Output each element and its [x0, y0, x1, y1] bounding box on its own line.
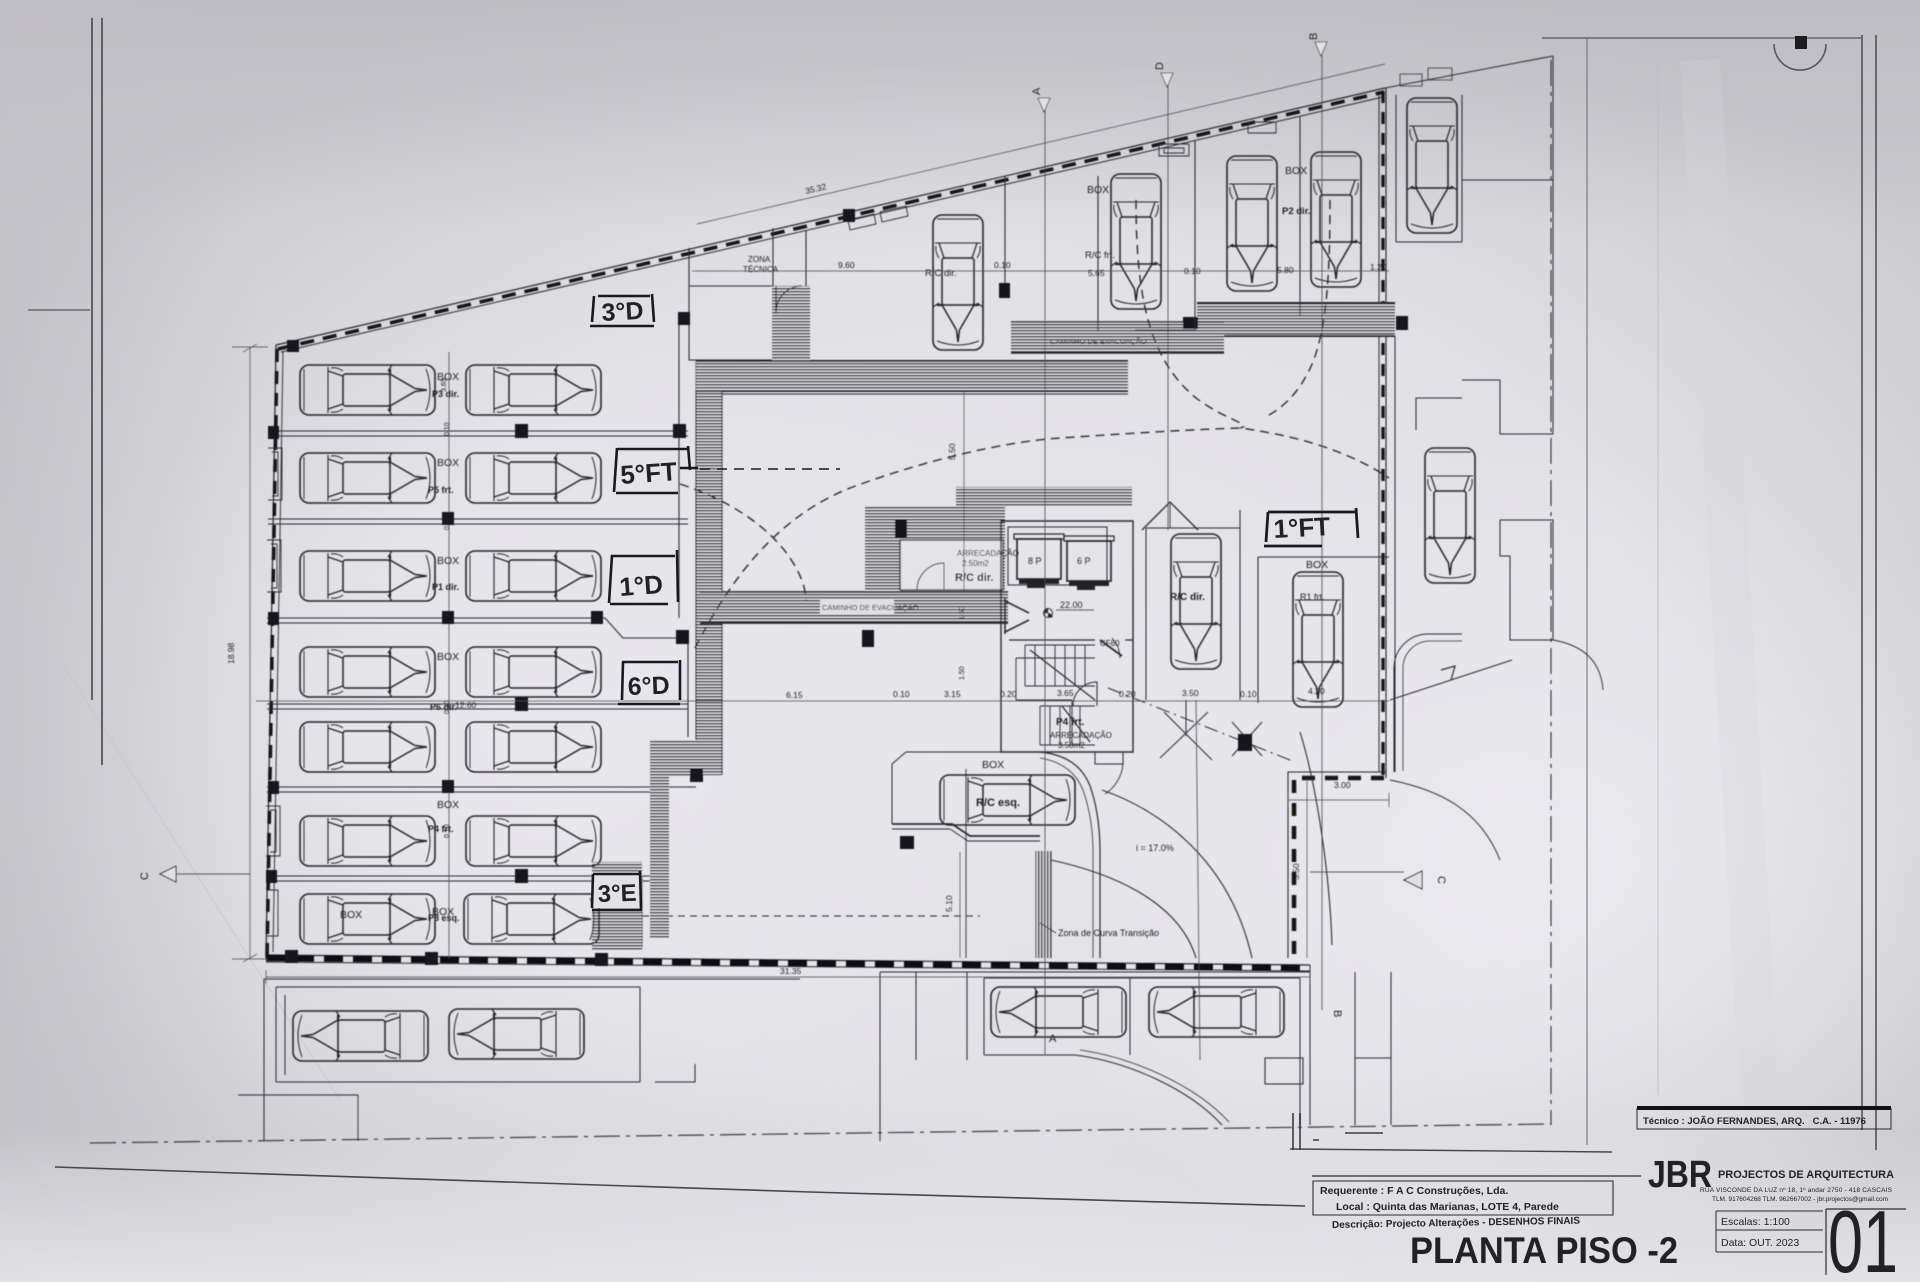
svg-text:5.80: 5.80 [1277, 265, 1294, 275]
svg-text:C: C [1435, 876, 1447, 884]
svg-text:Data: OUT. 2023: Data: OUT. 2023 [1721, 1237, 1799, 1249]
svg-text:Local : Quinta das Marianas, L: Local : Quinta das Marianas, LOTE 4, Par… [1336, 1201, 1559, 1213]
svg-text:0.10: 0.10 [444, 422, 451, 436]
svg-text:0.10: 0.10 [1240, 689, 1257, 699]
svg-text:BOX: BOX [1306, 559, 1328, 571]
svg-text:Escalas: 1:100: Escalas: 1:100 [1721, 1216, 1790, 1228]
svg-text:BOX: BOX [437, 555, 459, 567]
svg-text:R/C esq.: R/C esq. [976, 797, 1020, 809]
svg-text:0.20: 0.20 [1000, 689, 1017, 699]
svg-text:0.10: 0.10 [893, 689, 910, 699]
svg-text:i = 17.0%: i = 17.0% [1136, 843, 1174, 853]
svg-text:0.10: 0.10 [444, 700, 451, 714]
svg-text:CF60: CF60 [1100, 639, 1120, 648]
svg-text:01: 01 [1828, 1192, 1898, 1282]
svg-text:1.50: 1.50 [959, 666, 966, 680]
svg-text:5.65: 5.65 [1088, 268, 1105, 278]
svg-text:3°D: 3°D [601, 297, 644, 327]
svg-text:A: A [1031, 87, 1043, 95]
svg-text:8 P: 8 P [1028, 556, 1042, 566]
svg-text:5.50: 5.50 [947, 443, 957, 460]
svg-text:0.10: 0.10 [994, 260, 1011, 270]
svg-text:1°D: 1°D [618, 569, 664, 602]
svg-text:TÉCNICA: TÉCNICA [743, 265, 779, 274]
svg-text:R/C dir.: R/C dir. [925, 268, 957, 279]
svg-text:D: D [1154, 62, 1166, 70]
svg-text:P4 frt.: P4 frt. [1056, 717, 1085, 728]
svg-text:6°D: 6°D [627, 672, 670, 701]
svg-text:1°FT: 1°FT [1273, 511, 1331, 544]
svg-text:ZONA: ZONA [748, 255, 771, 264]
svg-text:PLANTA PISO -2: PLANTA PISO -2 [1410, 1230, 1678, 1271]
svg-text:B: B [1331, 1010, 1343, 1017]
svg-text:3.65: 3.65 [1057, 688, 1074, 698]
svg-text:5.50: 5.50 [1291, 863, 1301, 880]
svg-text:PROJECTOS DE ARQUITECTURA: PROJECTOS DE ARQUITECTURA [1718, 1169, 1894, 1181]
svg-text:1.50: 1.50 [959, 606, 966, 620]
svg-text:BOX: BOX [1285, 165, 1307, 177]
svg-text:12.60: 12.60 [455, 700, 477, 710]
svg-text:BOX: BOX [982, 759, 1004, 771]
svg-text:B: B [1308, 33, 1320, 40]
svg-text:CAMINHO DE EVACUAÇÃO: CAMINHO DE EVACUAÇÃO [822, 603, 919, 612]
svg-text:R/C dir.: R/C dir. [1170, 592, 1205, 603]
svg-text:18.98: 18.98 [226, 642, 236, 664]
svg-text:3°E: 3°E [597, 880, 637, 908]
svg-text:R1 frt.: R1 frt. [1300, 592, 1325, 602]
svg-text:5°FT: 5°FT [619, 456, 678, 490]
svg-text:6.15: 6.15 [786, 690, 803, 700]
svg-text:6 P: 6 P [1077, 556, 1091, 566]
svg-text:BOX: BOX [1087, 184, 1109, 196]
svg-text:BOX: BOX [437, 457, 459, 469]
svg-text:P1 dir.: P1 dir. [432, 582, 459, 592]
svg-text:ARRECADAÇÃO: ARRECADAÇÃO [1050, 731, 1112, 740]
svg-text:9.60: 9.60 [838, 260, 855, 270]
svg-text:31.35: 31.35 [780, 966, 802, 976]
svg-text:P2 dir.: P2 dir. [1282, 206, 1311, 217]
svg-text:2.50m2: 2.50m2 [962, 559, 989, 568]
svg-text:P5 frt.: P5 frt. [428, 485, 454, 495]
svg-text:1.20: 1.20 [1370, 262, 1387, 272]
svg-text:3.50: 3.50 [1182, 688, 1199, 698]
svg-text:BOX: BOX [437, 651, 459, 663]
svg-text:BOX: BOX [437, 799, 459, 811]
svg-text:4.20: 4.20 [1308, 686, 1325, 696]
svg-text:C: C [139, 872, 151, 880]
svg-text:CAMINHO DE EVACUAÇÃO: CAMINHO DE EVACUAÇÃO [1050, 337, 1147, 346]
svg-text:Requerente : F A C Construçõe: Requerente : F A C Construções, Lda. [1320, 1185, 1508, 1197]
svg-text:0.10: 0.10 [444, 516, 451, 530]
svg-text:P8 esq.: P8 esq. [428, 913, 460, 923]
svg-text:Zona de Curva Transição: Zona de Curva Transição [1058, 928, 1159, 938]
svg-text:3.00: 3.00 [1334, 780, 1351, 790]
svg-text:3.50m2: 3.50m2 [1058, 741, 1085, 750]
svg-text:A: A [1049, 1033, 1057, 1045]
svg-text:3.15: 3.15 [944, 689, 961, 699]
svg-text:0.10: 0.10 [444, 824, 451, 838]
svg-text:0.20: 0.20 [1119, 689, 1136, 699]
svg-text:Técnico : JOÃO FERNANDES, ARQ.: Técnico : JOÃO FERNANDES, ARQ. C.A. - 11… [1643, 1116, 1866, 1127]
svg-text:ARRECADAÇÃO: ARRECADAÇÃO [957, 549, 1019, 558]
svg-text:3.65: 3.65 [441, 378, 448, 392]
svg-text:R/C dir.: R/C dir. [955, 572, 994, 584]
svg-text:0.10: 0.10 [1184, 266, 1201, 276]
svg-text:5.10: 5.10 [944, 895, 954, 912]
svg-text:22.00: 22.00 [1060, 600, 1083, 610]
